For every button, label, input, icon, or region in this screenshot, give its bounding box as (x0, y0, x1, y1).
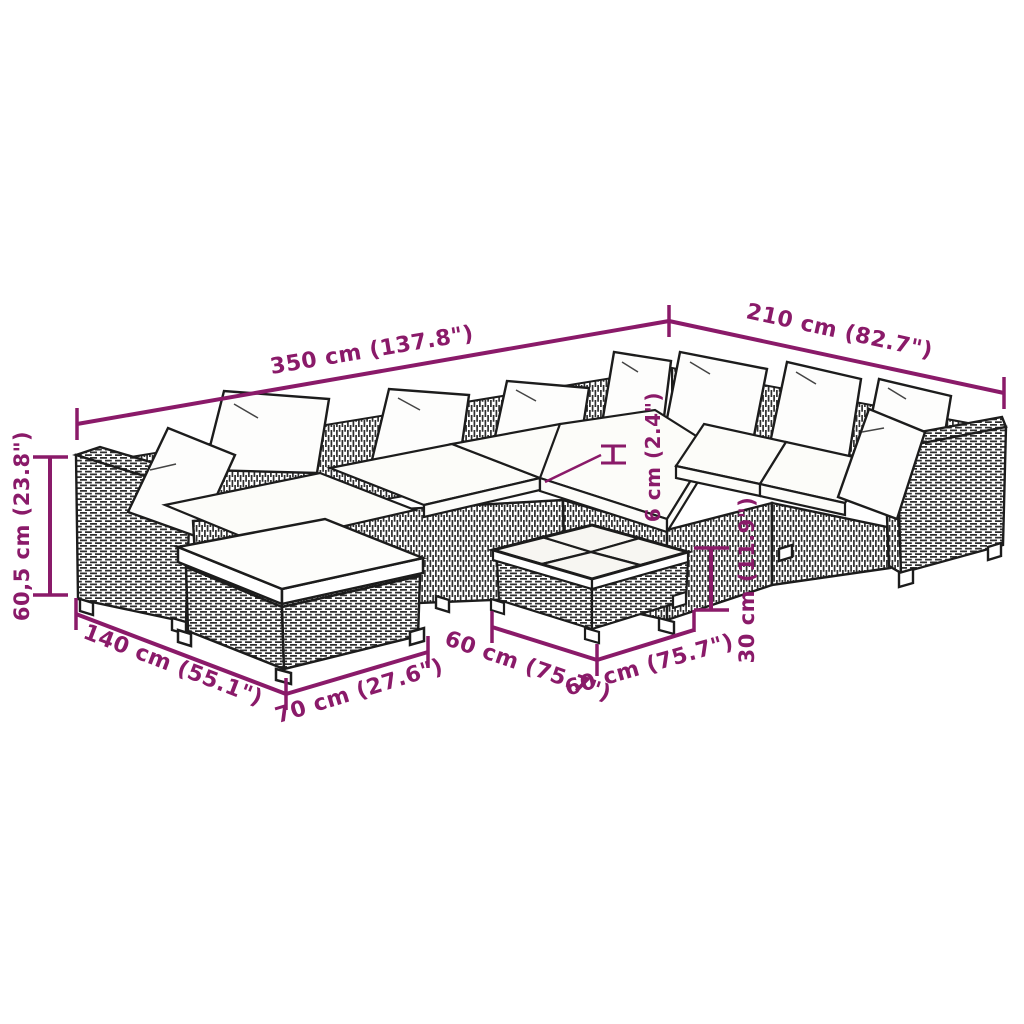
foot (659, 618, 674, 634)
product-dimension-diagram: 350 cm (137.8") 210 cm (82.7") 60,5 cm (… (0, 0, 1024, 1024)
dim-table-height-label: 30 cm (11.9") (735, 497, 759, 664)
foot (436, 596, 449, 612)
dim-short-side-label: 210 cm (82.7") (744, 299, 935, 364)
foot (988, 543, 1001, 560)
dim-cushion-thickness-label: 6 cm (2.4") (641, 392, 665, 522)
dim-height-label: 60,5 cm (23.8") (10, 431, 34, 621)
diagram-canvas: 350 cm (137.8") 210 cm (82.7") 60,5 cm (… (0, 0, 1024, 1024)
foot (585, 628, 599, 643)
foot (410, 628, 424, 645)
foot (178, 630, 191, 646)
foot (276, 669, 291, 684)
foot (899, 569, 913, 587)
foot (779, 545, 792, 561)
foot (673, 592, 686, 608)
dim-height-line (33, 457, 68, 595)
footstool (178, 519, 424, 684)
foot (80, 599, 93, 615)
